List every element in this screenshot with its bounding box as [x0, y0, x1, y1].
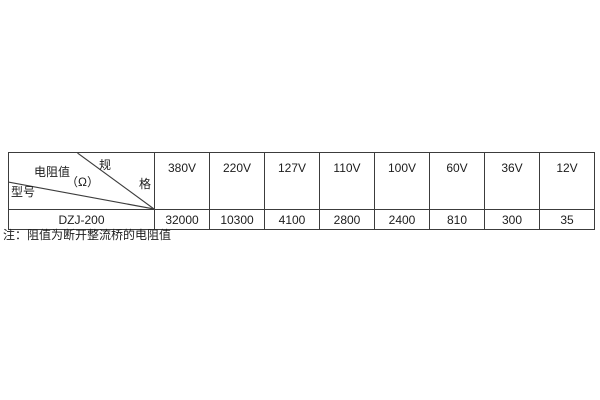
value-cell-12v: 35: [540, 210, 595, 230]
footnote: 注：阻值为断开整流桥的电阻值: [3, 226, 171, 243]
column-header-12v: 12V: [540, 153, 595, 210]
value-cell-36v: 300: [485, 210, 540, 230]
resistance-label: 电阻值: [34, 166, 70, 178]
header-row: 规 格 电阻值 （Ω） 型号 380V 220V 127V 110V 100V …: [9, 153, 595, 210]
value-cell-100v: 2400: [375, 210, 430, 230]
value-cell-220v: 10300: [210, 210, 265, 230]
resistance-unit-label: （Ω）: [66, 176, 99, 188]
spec-label-part1: 规: [99, 159, 111, 171]
value-cell-127v: 4100: [265, 210, 320, 230]
resistance-spec-table: 规 格 电阻值 （Ω） 型号 380V 220V 127V 110V 100V …: [8, 152, 595, 230]
column-header-127v: 127V: [265, 153, 320, 210]
column-header-110v: 110V: [320, 153, 375, 210]
column-header-36v: 36V: [485, 153, 540, 210]
column-header-60v: 60V: [430, 153, 485, 210]
value-cell-110v: 2800: [320, 210, 375, 230]
value-cell-60v: 810: [430, 210, 485, 230]
model-label: 型号: [11, 186, 35, 198]
spec-label-part2: 格: [139, 178, 151, 190]
column-header-100v: 100V: [375, 153, 430, 210]
column-header-380v: 380V: [155, 153, 210, 210]
corner-header-cell: 规 格 电阻值 （Ω） 型号: [9, 153, 155, 210]
page: 规 格 电阻值 （Ω） 型号 380V 220V 127V 110V 100V …: [0, 0, 600, 400]
column-header-220v: 220V: [210, 153, 265, 210]
